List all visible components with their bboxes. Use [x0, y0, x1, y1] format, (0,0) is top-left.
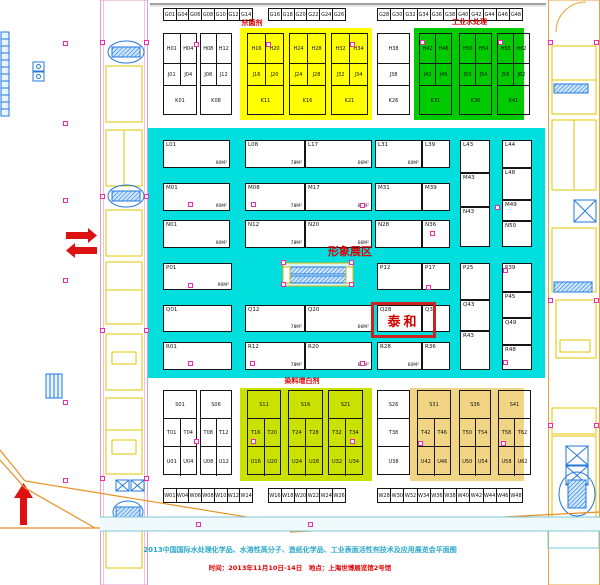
magenta-marker — [503, 268, 508, 273]
magenta-marker — [281, 260, 286, 265]
magenta-marker — [594, 423, 599, 428]
magenta-marker — [426, 285, 431, 290]
magenta-marker — [188, 202, 193, 207]
magenta-marker — [498, 40, 503, 45]
label-zone-industrial-water: 工业水处理 — [432, 19, 507, 26]
magenta-marker — [360, 361, 365, 366]
magenta-marker — [194, 42, 199, 47]
magenta-marker — [594, 40, 599, 45]
magenta-marker — [63, 41, 68, 46]
magenta-marker — [360, 203, 365, 208]
overlay-layer: 杀菌剂工业水处理染料增白剂形象展区 — [0, 0, 600, 585]
magenta-marker — [308, 522, 313, 527]
magenta-marker — [63, 400, 68, 405]
magenta-marker — [144, 476, 149, 481]
magenta-marker — [144, 194, 149, 199]
magenta-marker — [251, 202, 256, 207]
magenta-marker — [144, 328, 149, 333]
magenta-marker — [266, 42, 271, 47]
magenta-marker — [349, 282, 354, 287]
magenta-marker — [594, 298, 599, 303]
magenta-marker — [251, 439, 256, 444]
taihe-label: 泰和 — [387, 311, 419, 330]
magenta-marker — [194, 439, 199, 444]
label-zone-bactericide: 杀菌剂 — [222, 20, 282, 27]
magenta-marker — [250, 361, 255, 366]
magenta-marker — [100, 476, 105, 481]
magenta-marker — [350, 42, 355, 47]
magenta-marker — [63, 198, 68, 203]
magenta-marker — [349, 260, 354, 265]
taihe-highlight-box: 泰和 — [371, 302, 436, 338]
magenta-marker — [144, 40, 149, 45]
magenta-marker — [548, 298, 553, 303]
magenta-marker — [501, 441, 506, 446]
magenta-marker — [548, 40, 553, 45]
magenta-marker — [495, 205, 500, 210]
magenta-marker — [100, 328, 105, 333]
exhibition-floorplan: G01G04G06G08G10G12G14G16G18G20G22G24G26G… — [0, 0, 600, 585]
magenta-marker — [418, 441, 423, 446]
magenta-marker — [188, 283, 193, 288]
magenta-marker — [420, 40, 425, 45]
magenta-marker — [548, 423, 553, 428]
magenta-marker — [100, 194, 105, 199]
label-image-area: 形象展区 — [322, 246, 378, 257]
expo-datetime-caption: 时间：2013年11月10日-14日 地点：上海世博展览馆2号馆 — [140, 562, 460, 572]
magenta-marker — [350, 439, 355, 444]
magenta-marker — [63, 278, 68, 283]
label-zone-dye-whitening: 染料增白剂 — [267, 378, 337, 385]
magenta-marker — [503, 360, 508, 365]
expo-title-caption: 2013中国国际水处理化学品、水溶性高分子、造纸化学品、工业表面活性剂技术及应用… — [90, 545, 510, 555]
magenta-marker — [63, 121, 68, 126]
magenta-marker — [430, 231, 435, 236]
magenta-marker — [281, 282, 286, 287]
magenta-marker — [196, 522, 201, 527]
magenta-marker — [100, 40, 105, 45]
magenta-marker — [188, 361, 193, 366]
magenta-marker — [63, 478, 68, 483]
